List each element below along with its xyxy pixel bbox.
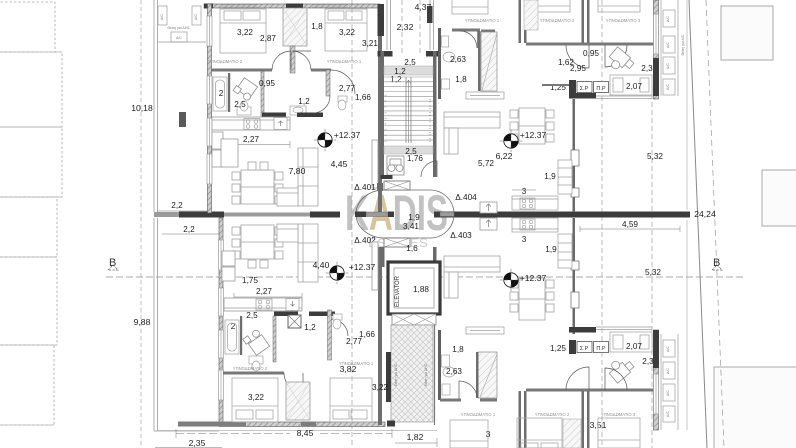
svg-text:A/C: A/C: [160, 14, 164, 20]
svg-text:1,2: 1,2: [390, 75, 402, 84]
svg-text:ΥΠΝΟΔΩΜΑΤΙΟ 3: ΥΠΝΟΔΩΜΑΤΙΟ 3: [601, 412, 636, 417]
svg-text:1,66: 1,66: [359, 330, 375, 339]
svg-text:1,25: 1,25: [550, 344, 566, 353]
svg-text:4,59: 4,59: [622, 220, 638, 229]
svg-text:2,27: 2,27: [256, 287, 272, 296]
svg-text:3: 3: [522, 187, 527, 196]
svg-text:1,75: 1,75: [242, 276, 258, 285]
svg-text:7,80: 7,80: [289, 166, 306, 176]
svg-text:3,22: 3,22: [248, 393, 264, 402]
svg-text:5,32: 5,32: [647, 152, 663, 161]
svg-text:1,8: 1,8: [455, 75, 467, 84]
svg-text:Π.Ρ: Π.Ρ: [596, 86, 606, 92]
svg-text:2,5: 2,5: [404, 58, 416, 67]
svg-text:3,82: 3,82: [340, 364, 357, 374]
svg-text:1,2: 1,2: [298, 97, 310, 106]
svg-text:ELEVATOR: ELEVATOR: [395, 275, 401, 307]
svg-text:ΥΠΝΟΔΩΜΑΤΙΟ 3: ΥΠΝΟΔΩΜΑΤΙΟ 3: [606, 18, 641, 23]
svg-text:6,22: 6,22: [496, 151, 513, 161]
svg-text:ΥΠΝΟΔΩΜΑΤΙΟ 1: ΥΠΝΟΔΩΜΑΤΙΟ 1: [465, 18, 500, 23]
svg-text:A/C: A/C: [666, 390, 670, 396]
svg-text:A/C: A/C: [666, 346, 670, 352]
svg-text:Σ.Ρ: Σ.Ρ: [580, 86, 589, 92]
svg-text:2,3: 2,3: [641, 64, 653, 73]
svg-text:1,66: 1,66: [355, 93, 371, 102]
svg-text:0,95: 0,95: [583, 49, 599, 58]
svg-text:1 2 3 4 5 6 7 8 9: 1 2 3 4 5 6 7 8 9: [384, 93, 388, 142]
svg-text:ΥΠΝΟΔΩΜΑΤΙΟ 2: ΥΠΝΟΔΩΜΑΤΙΟ 2: [208, 59, 243, 64]
svg-text:B: B: [109, 257, 116, 269]
svg-text:A/C: A/C: [666, 16, 670, 22]
svg-text:1,8: 1,8: [452, 345, 464, 354]
svg-text:5,72: 5,72: [478, 159, 494, 168]
svg-text:2,63: 2,63: [450, 55, 466, 64]
svg-text:2,63: 2,63: [446, 367, 462, 376]
svg-text:2,3: 2,3: [642, 357, 654, 366]
svg-text:1,2: 1,2: [304, 323, 316, 332]
svg-text:1,9: 1,9: [408, 213, 420, 222]
svg-text:3,22: 3,22: [339, 28, 355, 37]
svg-text:B: B: [713, 257, 720, 269]
svg-text:A/C: A/C: [666, 63, 670, 69]
svg-text:+12.37: +12.37: [349, 262, 376, 272]
svg-text:3,22: 3,22: [372, 383, 388, 392]
svg-text:2,27: 2,27: [243, 135, 259, 144]
svg-text:3,21: 3,21: [362, 39, 378, 48]
svg-text:A/C: A/C: [666, 84, 670, 90]
svg-text:0,95: 0,95: [259, 79, 275, 88]
svg-text:Θέση για ΑΗΣ: Θέση για ΑΗΣ: [394, 363, 398, 386]
svg-text:2,07: 2,07: [626, 342, 642, 351]
svg-text:1,88: 1,88: [413, 285, 429, 294]
svg-text:Δ.401: Δ.401: [354, 183, 376, 192]
svg-text:1,76: 1,76: [407, 154, 423, 163]
svg-text:5,32: 5,32: [645, 268, 661, 277]
svg-text:2,2: 2,2: [183, 225, 195, 234]
svg-text:+12.37: +12.37: [520, 273, 547, 283]
svg-text:9,88: 9,88: [134, 317, 151, 327]
svg-text:3,41: 3,41: [403, 222, 419, 231]
svg-text:4,45: 4,45: [331, 159, 348, 169]
svg-text:A/C: A/C: [666, 368, 670, 374]
svg-text:2,35: 2,35: [189, 438, 206, 448]
svg-text:Δ.404: Δ.404: [455, 193, 477, 202]
svg-text:8,45: 8,45: [297, 428, 314, 438]
svg-text:+12.37: +12.37: [520, 130, 547, 140]
svg-text:+12.37: +12.37: [334, 130, 361, 140]
svg-text:Θέση για ΑΗΣ.: Θέση για ΑΗΣ.: [167, 26, 190, 30]
svg-text:ΥΠΝΟΔΩΜΑΤΙΟ 2: ΥΠΝΟΔΩΜΑΤΙΟ 2: [233, 366, 268, 371]
svg-text:2,77: 2,77: [339, 84, 355, 93]
svg-text:A/C: A/C: [176, 36, 182, 40]
svg-text:1,6: 1,6: [406, 244, 418, 253]
svg-text:2,07: 2,07: [626, 82, 642, 91]
svg-text:A/C: A/C: [666, 411, 670, 417]
svg-text:Δ.403: Δ.403: [450, 231, 472, 240]
svg-text:2,2: 2,2: [171, 201, 183, 210]
svg-text:ΥΠΝΟΔΩΜΑΤΙΟ 2: ΥΠΝΟΔΩΜΑΤΙΟ 2: [540, 18, 575, 23]
svg-text:1,82: 1,82: [407, 432, 424, 442]
svg-text:2,5: 2,5: [234, 100, 246, 109]
svg-text:3: 3: [522, 235, 527, 244]
svg-text:ΥΠΝΟΔΩΜΑΤΙΟ 1: ΥΠΝΟΔΩΜΑΤΙΟ 1: [461, 412, 496, 417]
svg-text:1,8: 1,8: [311, 22, 323, 31]
svg-text:24,24: 24,24: [694, 209, 716, 219]
svg-text:A/C: A/C: [194, 14, 198, 20]
svg-text:1,9: 1,9: [544, 172, 556, 181]
svg-text:2,87: 2,87: [260, 34, 276, 43]
svg-text:1,9: 1,9: [545, 245, 557, 254]
svg-text:2,95: 2,95: [570, 64, 586, 73]
svg-text:ΥΠΝΟΔΩΜΑΤΙΟ 1: ΥΠΝΟΔΩΜΑΤΙΟ 1: [327, 59, 362, 64]
svg-text:2: 2: [219, 89, 224, 98]
svg-text:ΥΠΝΟΔΩΜΑΤΙΟ 2: ΥΠΝΟΔΩΜΑΤΙΟ 2: [535, 412, 570, 417]
svg-text:Π.Ρ: Π.Ρ: [596, 346, 606, 352]
svg-text:4,40: 4,40: [313, 260, 330, 270]
svg-text:2,32: 2,32: [397, 22, 414, 32]
svg-text:Θέση για ΑΗΣ: Θέση για ΑΗΣ: [424, 363, 428, 386]
svg-text:A/C: A/C: [666, 42, 670, 48]
svg-text:10,18: 10,18: [131, 103, 153, 113]
svg-text:2,5: 2,5: [246, 311, 258, 320]
svg-text:Σ.Ρ: Σ.Ρ: [580, 346, 589, 352]
svg-text:3,22: 3,22: [237, 28, 253, 37]
svg-text:Θέση για Α/C: Θέση για Α/C: [681, 34, 685, 55]
svg-text:10 11 12 13 14 15 16: 10 11 12 13 14 15 16: [428, 98, 432, 142]
